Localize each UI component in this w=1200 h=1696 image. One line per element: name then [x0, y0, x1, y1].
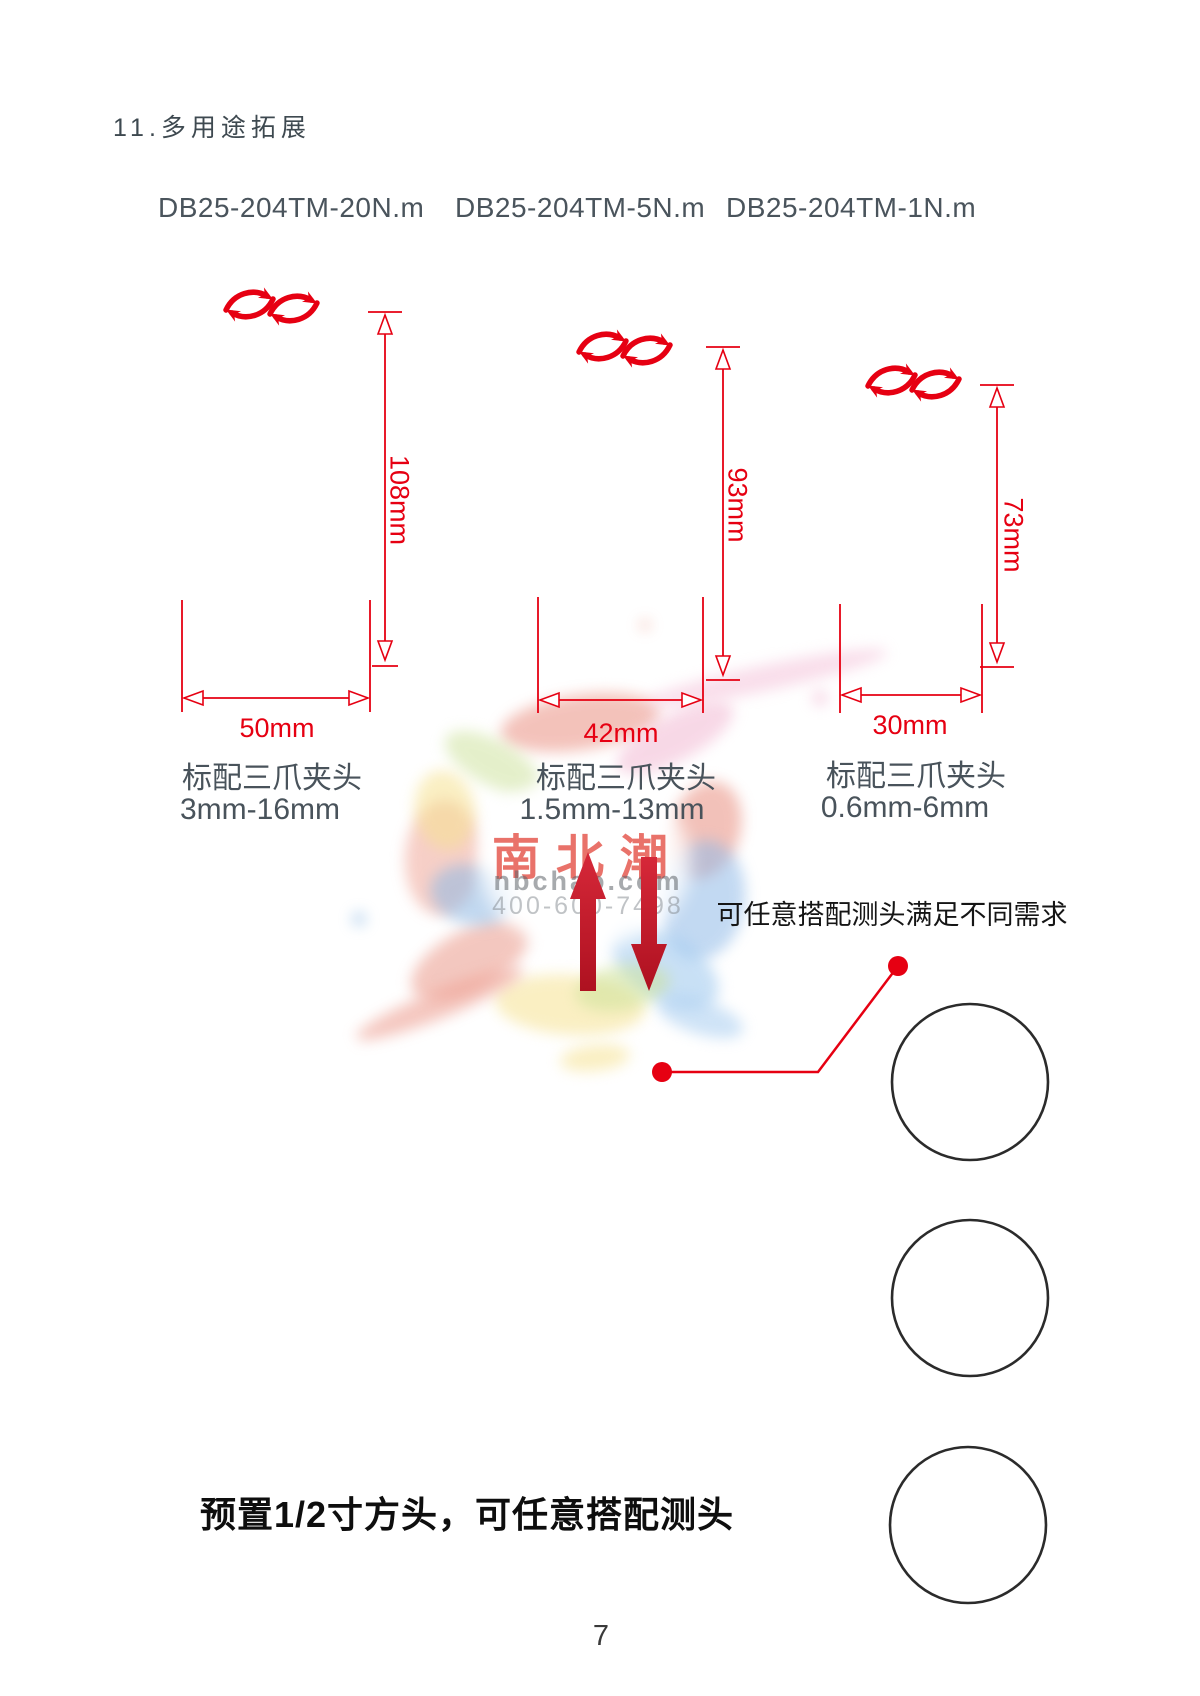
- watermark-splash: [425, 857, 521, 933]
- watermark-splash: [640, 620, 650, 630]
- pointer-line: [652, 956, 908, 1082]
- page-number: 7: [593, 1620, 609, 1653]
- watermark-core: [480, 775, 690, 950]
- height-dimension-line: [706, 347, 740, 680]
- chuck-range-1: 3mm-16mm: [180, 793, 340, 827]
- product-model-2: DB25-204TM-5N.m: [455, 192, 705, 224]
- width-dimension-line: [840, 604, 982, 713]
- width-label-1: 50mm: [239, 713, 314, 744]
- width-dimension-line: [182, 600, 370, 712]
- pointer-dot: [652, 1062, 672, 1082]
- watermark-splash: [640, 639, 890, 716]
- height-dimension-line: [368, 312, 402, 666]
- height-dimension-line: [980, 385, 1014, 667]
- watermark-splash: [597, 908, 733, 1027]
- watermark-splash: [352, 912, 366, 926]
- watermark-splash: [399, 903, 542, 1017]
- height-label-2: 93mm: [722, 467, 753, 542]
- chuck-label-3: 标配三爪夹头: [826, 751, 1006, 795]
- width-dimension-line: [538, 597, 703, 713]
- watermark-splash: [401, 798, 484, 918]
- chuck-range-3: 0.6mm-6mm: [821, 791, 989, 825]
- watermark-splash: [652, 987, 748, 1047]
- watermark-splash: [493, 970, 647, 1040]
- dimension-diagram: [0, 0, 1200, 1696]
- text-layer: 11.多用途拓展 DB25-204TM-20N.m DB25-204TM-5N.…: [0, 0, 1200, 1696]
- watermark-splash: [652, 835, 753, 966]
- watermark-brand-text: 南北潮: [492, 818, 684, 888]
- watermark-domain-text: nbchao.com: [493, 866, 682, 897]
- chuck-label-2: 标配三爪夹头: [536, 753, 716, 797]
- watermark: 南北潮 nbchao.com 400-600-7498: [0, 0, 1200, 1696]
- pointer-dot: [888, 956, 908, 976]
- watermark-splash: [607, 687, 743, 789]
- height-label-3: 73mm: [998, 497, 1029, 572]
- watermark-splash: [409, 765, 482, 854]
- section-title: 11.多用途拓展: [113, 108, 311, 144]
- watermark-splash: [812, 690, 828, 706]
- watermark-splash: [572, 957, 673, 1018]
- product-model-1: DB25-204TM-20N.m: [158, 192, 424, 224]
- chuck-label-1: 标配三爪夹头: [182, 753, 362, 797]
- plunger-up-arrow: [570, 852, 606, 991]
- plunger-down-arrow: [631, 857, 667, 991]
- watermark-splash: [656, 772, 753, 889]
- chuck-range-2: 1.5mm-13mm: [519, 793, 704, 827]
- width-label-3: 30mm: [872, 710, 947, 741]
- rotation-arrows-icon: [579, 334, 670, 362]
- width-label-2: 42mm: [583, 718, 658, 749]
- probe-note: 可任意搭配测头满足不同需求: [717, 893, 1068, 932]
- watermark-splash: [497, 684, 663, 761]
- watermark-splash: [351, 957, 528, 1050]
- rotation-arrows-icon: [226, 292, 317, 320]
- probe-circle: [892, 1004, 1048, 1160]
- footer-note: 预置1/2寸方头，可任意搭配测头: [200, 1486, 734, 1538]
- watermark-splash: [436, 718, 550, 807]
- rotation-arrows-icon: [868, 368, 959, 396]
- probe-circle: [892, 1220, 1048, 1376]
- watermark-splash: [559, 1041, 631, 1074]
- product-model-3: DB25-204TM-1N.m: [726, 192, 976, 224]
- page: 南北潮 nbchao.com 400-600-7498: [0, 0, 1200, 1696]
- height-label-1: 108mm: [384, 455, 415, 545]
- watermark-phone-text: 400-600-7498: [492, 892, 684, 921]
- probe-circle: [890, 1447, 1046, 1603]
